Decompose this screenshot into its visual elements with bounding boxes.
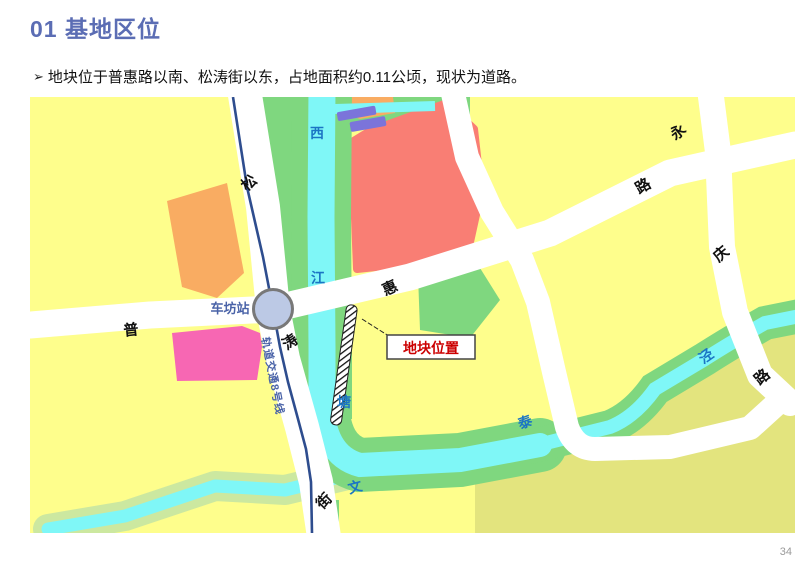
map-canvas: 地块位置 西 江 塘 文 泰 泾 普 惠 路 松 涛 街 永 庆 路 车坊站 轨…	[30, 97, 795, 533]
site-label: 地块位置	[403, 340, 459, 356]
river-top-branch	[335, 106, 435, 109]
page-number: 34	[780, 546, 792, 558]
road-label-pu: 普	[123, 320, 140, 339]
bullet-text: 地块位于普惠路以南、松涛街以东，占地面积约0.11公顷，现状为道路。	[48, 66, 526, 87]
river-vertical	[321, 97, 322, 419]
page-title: 01 基地区位	[30, 10, 161, 44]
metro-station-circle	[254, 290, 293, 329]
parcel-pink	[172, 326, 262, 381]
river-label-tang: 塘	[337, 394, 351, 410]
station-label: 车坊站	[210, 301, 249, 316]
river-label-jiang: 江	[311, 270, 325, 286]
site-location-map: 地块位置 西 江 塘 文 泰 泾 普 惠 路 松 涛 街 永 庆 路 车坊站 轨…	[30, 97, 795, 533]
river-label-xi: 西	[310, 125, 324, 141]
arrow-bullet-icon: ➢	[33, 69, 44, 85]
slide: 01 基地区位 ➢ 地块位于普惠路以南、松涛街以东，占地面积约0.11公顷，现状…	[0, 0, 800, 566]
bullet-line: ➢ 地块位于普惠路以南、松涛街以东，占地面积约0.11公顷，现状为道路。	[33, 66, 526, 87]
